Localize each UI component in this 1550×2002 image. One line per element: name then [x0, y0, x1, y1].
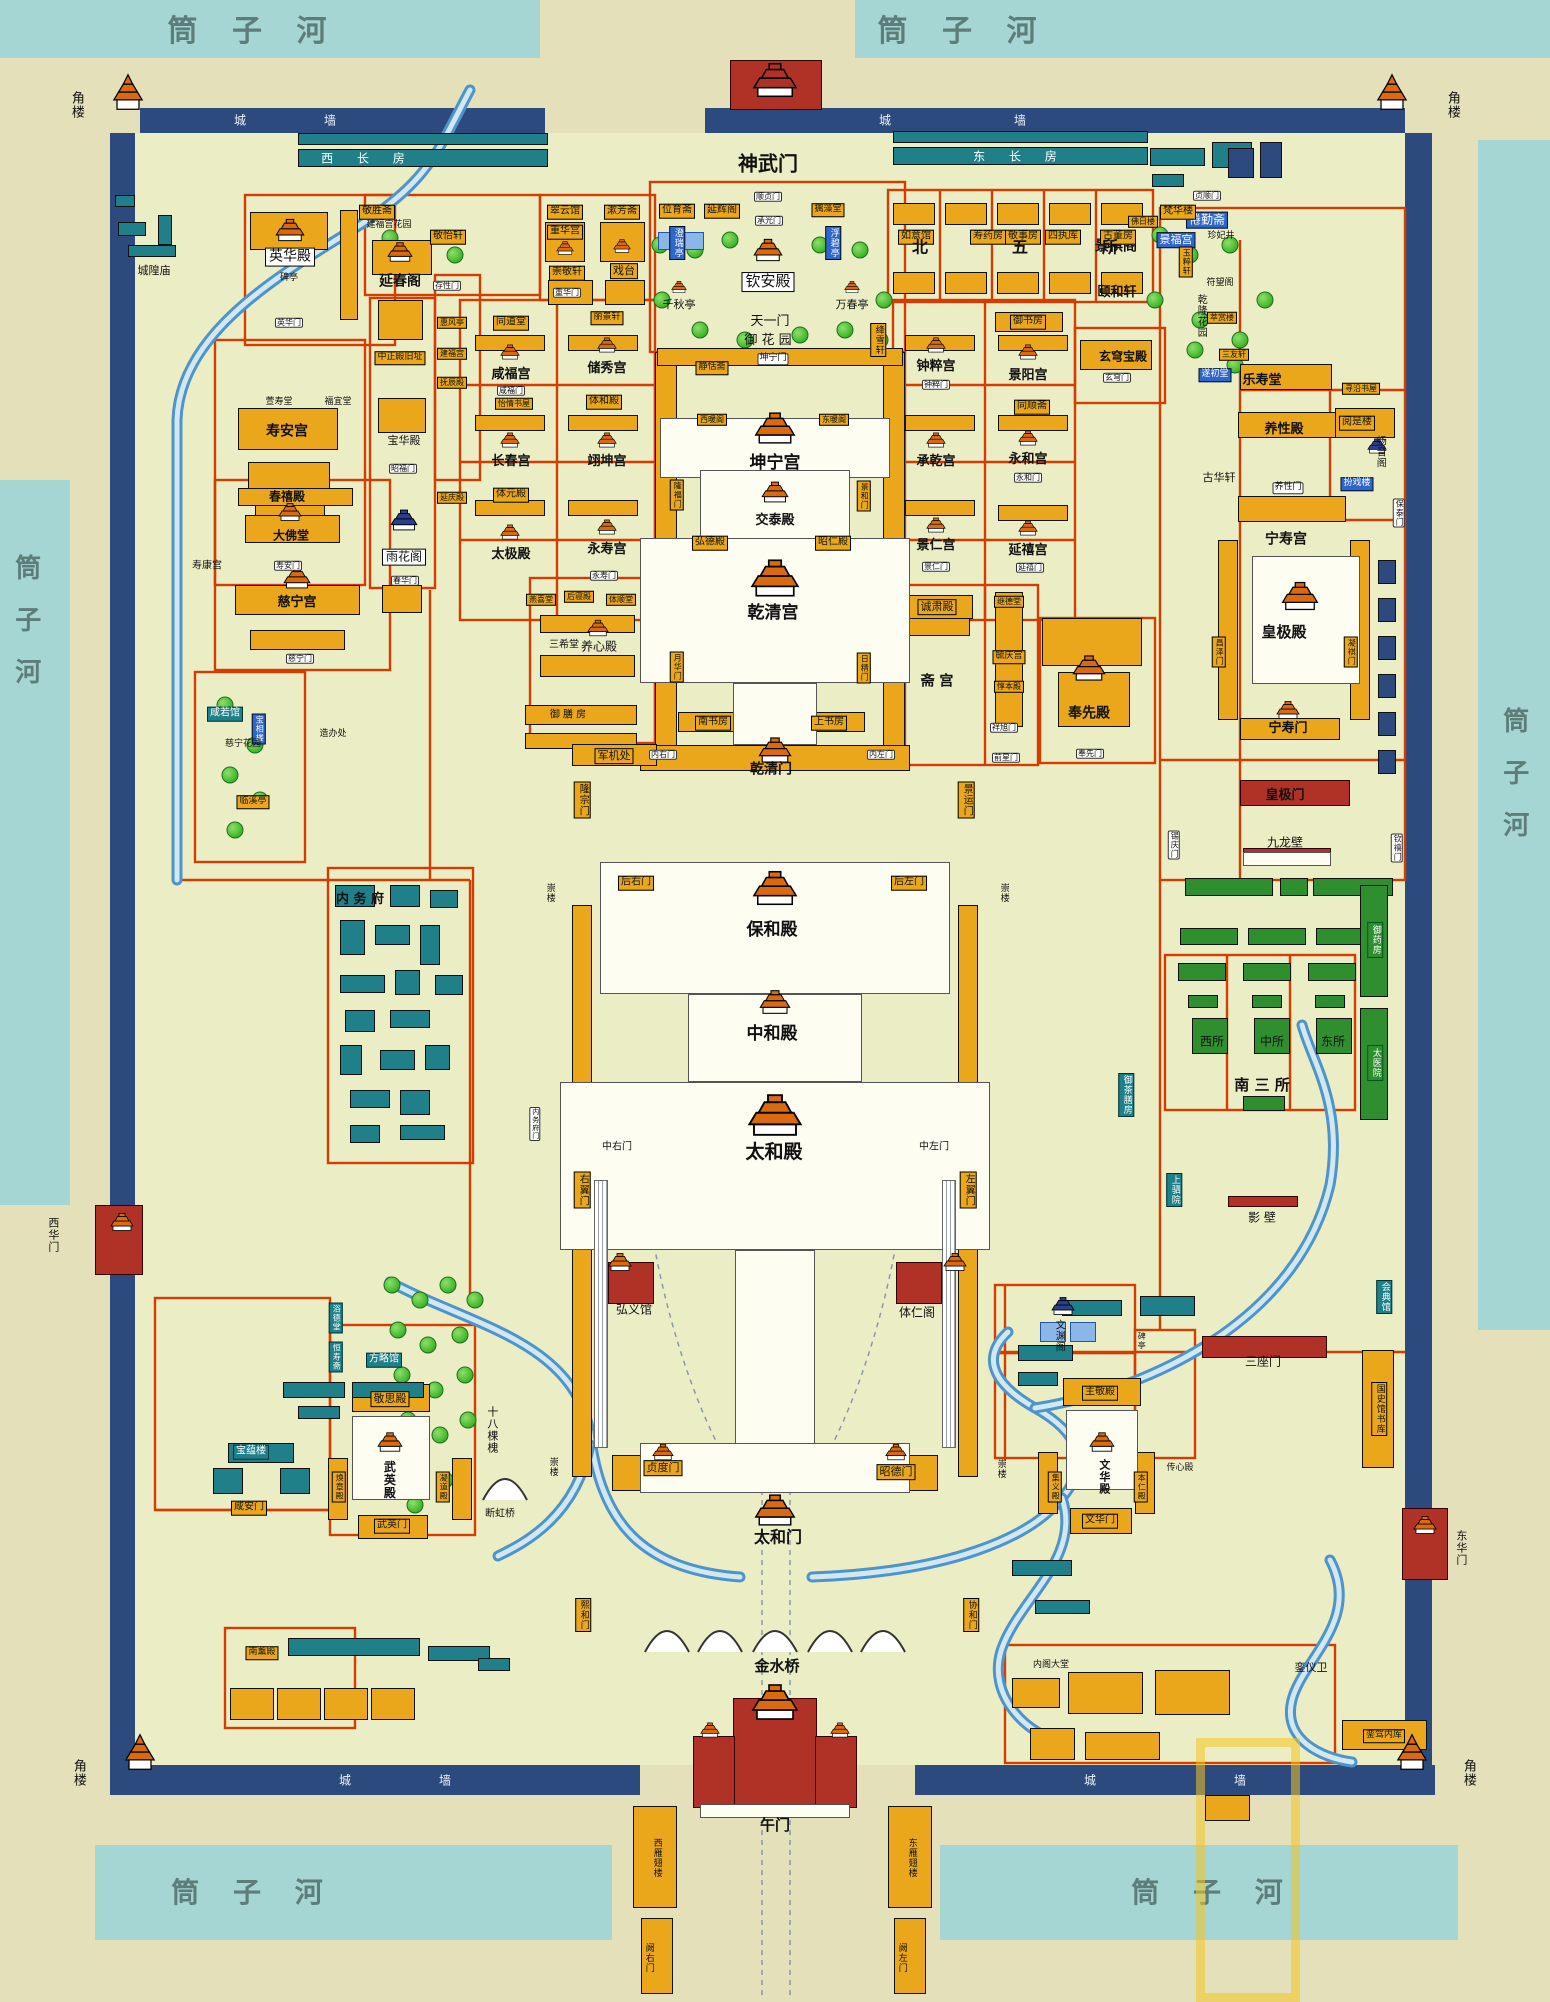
building-gold — [1085, 1732, 1160, 1760]
palace-hall-icon — [752, 868, 798, 907]
tree-icon — [692, 322, 709, 339]
map-label-銮驾内库: 銮驾内库 — [1363, 1729, 1405, 1743]
map-label-西华门: 西华门 — [47, 1217, 59, 1253]
map-label-寿安宫: 寿安宫 — [266, 425, 308, 440]
building-teal — [345, 1010, 375, 1032]
building-gold — [905, 415, 975, 431]
palace-hall-icon — [1281, 580, 1319, 612]
map-label-墙: 墙 — [439, 1775, 451, 1788]
building-navy — [1378, 750, 1396, 774]
building-teal — [395, 970, 420, 995]
palace-hall-icon — [747, 1091, 803, 1139]
map-label-九龙壁: 九龙壁 — [1267, 837, 1303, 850]
map-label-浴德堂: 浴德堂 — [329, 1303, 343, 1334]
map-label-乐寿堂: 乐寿堂 — [1242, 374, 1281, 388]
palace-hall-icon — [700, 1722, 720, 1739]
palace-hall-icon — [110, 1212, 134, 1232]
building-teal — [1035, 1600, 1090, 1614]
building-gold — [568, 500, 638, 516]
map-label-御 花 园: 御 花 园 — [744, 334, 791, 348]
map-label-景运门: 景运门 — [958, 782, 975, 819]
palace-hall-icon — [1072, 654, 1106, 683]
watermark-frame — [1196, 1738, 1300, 2002]
tree-icon — [467, 1292, 484, 1309]
palace-hall-icon — [500, 432, 520, 449]
map-label-万春亭: 万春亭 — [836, 299, 869, 311]
map-label-交泰殿: 交泰殿 — [755, 514, 794, 528]
building-teal — [1018, 1372, 1058, 1386]
map-label-静恬斋: 静恬斋 — [695, 361, 728, 375]
map-label-西 长 房: 西 长 房 — [321, 153, 415, 166]
map-label-崇楼: 崇楼 — [547, 1457, 557, 1477]
map-label-碑亭: 碑亭 — [280, 274, 298, 284]
tree-icon — [876, 292, 893, 309]
map-label-萱寿堂: 萱寿堂 — [265, 398, 292, 408]
map-label-建福宫: 建福宫 — [437, 348, 467, 360]
palace-hall-icon — [556, 240, 574, 255]
palace-hall-icon — [752, 60, 798, 99]
map-label-西暖阁: 西暖阁 — [697, 414, 727, 426]
map-label-佛日楼: 佛日楼 — [1128, 216, 1158, 228]
map-label-文华殿: 文华殿 — [1098, 1459, 1110, 1495]
map-label-宝蕴楼: 宝蕴楼 — [233, 1445, 269, 1460]
building-teal — [350, 1125, 380, 1143]
map-label-角楼: 角楼 — [1445, 91, 1459, 119]
map-label-景阳宫: 景阳宫 — [1008, 369, 1047, 383]
map-label-隆福门: 隆福门 — [670, 480, 684, 511]
map-label-怡情书屋: 怡情书屋 — [495, 398, 533, 410]
building-teal — [115, 195, 135, 207]
map-label-三希堂: 三希堂 — [549, 641, 579, 652]
map-label-景福宫: 景福宫 — [1157, 232, 1196, 248]
map-label-三座门: 三座门 — [1245, 1356, 1281, 1369]
map-label-内阁大堂: 内阁大堂 — [1033, 1661, 1069, 1671]
tree-icon — [452, 1327, 469, 1344]
map-label-古华轩: 古华轩 — [1203, 472, 1236, 484]
palace-hall-icon — [597, 519, 617, 536]
building-teal — [390, 1010, 430, 1028]
map-label-梵华楼: 梵华楼 — [1160, 205, 1196, 220]
building-teal — [1140, 1296, 1195, 1316]
building-gold — [893, 203, 935, 225]
map-label-銮仪卫: 銮仪卫 — [1295, 1662, 1328, 1674]
map-label-抚辰殿: 抚辰殿 — [437, 377, 467, 389]
building-navy — [1378, 598, 1396, 622]
map-label-敬怡轩: 敬怡轩 — [430, 230, 466, 245]
map-label-昌泽门: 昌泽门 — [1212, 637, 1226, 668]
map-label-临溪亭: 临溪亭 — [236, 795, 269, 809]
map-label-同顺斋: 同顺斋 — [1014, 400, 1050, 415]
palace-hall-icon — [751, 1682, 799, 1723]
map-label-永和宫: 永和宫 — [1008, 453, 1047, 467]
map-label-筒 子 河: 筒 子 河 — [878, 16, 1049, 48]
map-label-十八棵槐: 十八棵槐 — [486, 1406, 498, 1454]
palace-hall-icon — [926, 432, 946, 449]
map-label-贞度门: 贞度门 — [644, 1460, 683, 1476]
building-gold — [1049, 203, 1091, 225]
tree-icon — [384, 1277, 401, 1294]
palace-hall-icon — [597, 337, 617, 354]
map-label-筒 子 河: 筒 子 河 — [171, 1878, 335, 1908]
building-gold — [378, 300, 423, 340]
corner-tower-icon — [104, 72, 152, 113]
terrace-white — [1243, 852, 1331, 866]
map-label-太极殿: 太极殿 — [491, 548, 530, 562]
map-label-宝华殿: 宝华殿 — [388, 435, 421, 447]
map-label-咸福门: 咸福门 — [497, 386, 525, 396]
map-label-惠风亭: 惠风亭 — [437, 317, 467, 329]
map-label-斋 宫: 斋 宫 — [921, 675, 954, 690]
map-label-寿药房: 寿药房 — [970, 230, 1006, 245]
building-green — [1185, 878, 1273, 896]
map-label-钟粹宫: 钟粹宫 — [916, 360, 955, 374]
map-label-翊坤宫: 翊坤宫 — [587, 455, 626, 469]
map-label-皇极殿: 皇极殿 — [1261, 625, 1306, 641]
bridge-icon — [645, 1631, 689, 1652]
building-teal — [280, 1468, 310, 1494]
map-label-崇敬轩: 崇敬轩 — [549, 266, 585, 281]
map-label-乾清宫: 乾清宫 — [748, 604, 799, 622]
map-label-东雁翅楼: 东雁翅楼 — [906, 1838, 916, 1878]
building-green — [1180, 928, 1238, 945]
map-label-顺贞门: 顺贞门 — [754, 192, 782, 202]
map-label-大佛堂: 大佛堂 — [273, 530, 309, 543]
palace-hall-icon — [943, 1252, 967, 1272]
palace-hall-icon — [1413, 1515, 1437, 1535]
map-label-雨花阁: 雨花阁 — [382, 549, 426, 566]
map-label-春禧殿: 春禧殿 — [269, 491, 305, 504]
tree-icon — [412, 1292, 429, 1309]
map-label-同道堂: 同道堂 — [493, 316, 529, 331]
building-green — [1178, 963, 1226, 981]
map-label-所: 所 — [1102, 240, 1118, 257]
building-gold — [893, 272, 935, 294]
map-label-城: 城 — [339, 1775, 351, 1788]
map-label-继德堂: 继德堂 — [994, 596, 1024, 608]
map-label-敬胜斋: 敬胜斋 — [359, 205, 395, 220]
map-label-月华门: 月华门 — [670, 652, 684, 683]
map-label-浮碧亭: 浮碧亭 — [825, 226, 841, 260]
building-teal — [288, 1638, 420, 1656]
map-label-御药房: 御药房 — [1367, 922, 1383, 958]
map-label-弘义馆: 弘义馆 — [616, 1304, 652, 1317]
map-label-阙右门: 阙右门 — [643, 1943, 653, 1973]
map-label-储秀宫: 储秀宫 — [587, 362, 626, 376]
map-label-承乾宫: 承乾宫 — [916, 455, 955, 469]
map-label-武英殿: 武英殿 — [383, 1461, 396, 1500]
building-gold — [905, 500, 975, 516]
map-label-重华宫: 重华宫 — [547, 225, 583, 240]
corridor-hatched — [594, 1180, 608, 1448]
building-gold — [1012, 1678, 1060, 1708]
map-label-燕喜堂: 燕喜堂 — [526, 594, 556, 606]
map-label-钦禧门: 钦禧门 — [1391, 834, 1403, 863]
building-gold — [1238, 496, 1346, 522]
building-gold — [908, 618, 970, 636]
palace-hall-icon — [759, 988, 791, 1015]
map-label-体元殿: 体元殿 — [493, 488, 529, 503]
map-label-锡庆门: 锡庆门 — [1168, 831, 1180, 860]
map-label-养性殿: 养性殿 — [1264, 423, 1303, 437]
map-label-乾隆花园: 乾隆花园 — [1195, 294, 1206, 338]
palace-hall-icon — [1018, 430, 1038, 447]
bridge-icon — [861, 1631, 905, 1652]
map-label-玉粹轩: 玉粹轩 — [1179, 247, 1193, 278]
map-label-四执库: 四执库 — [1045, 230, 1081, 245]
tree-icon — [1187, 342, 1204, 359]
map-label-上书房: 上书房 — [811, 716, 847, 731]
building-navy — [1378, 560, 1396, 584]
building-teal — [158, 215, 172, 245]
bridge-icon — [483, 1479, 527, 1500]
map-label-养心殿: 养心殿 — [581, 641, 617, 654]
palace-hall-icon — [608, 1252, 632, 1272]
palace-hall-icon — [390, 508, 418, 532]
map-label-御 膳 房: 御 膳 房 — [550, 711, 586, 722]
map-label-崇楼: 崇楼 — [998, 883, 1008, 903]
map-label-承光门: 承光门 — [755, 216, 783, 226]
tree-icon — [1257, 292, 1274, 309]
courtyard-wall — [195, 672, 305, 862]
palace-hall-icon — [754, 1492, 796, 1528]
building-teal — [298, 133, 548, 145]
map-label-东 长 房: 东 长 房 — [973, 151, 1067, 164]
building-gold — [371, 1688, 415, 1720]
pond-water — [1070, 1322, 1096, 1342]
map-label-墙: 墙 — [1014, 115, 1026, 128]
building-teal — [430, 890, 458, 908]
palace-hall-icon — [1051, 1296, 1075, 1316]
palace-hall-icon — [1018, 344, 1038, 361]
map-label-前星门: 前星门 — [992, 753, 1020, 763]
map-label-筒子河: 筒子河 — [1499, 707, 1527, 863]
map-label-景仁宫: 景仁宫 — [916, 539, 955, 553]
tree-icon — [394, 1367, 411, 1384]
building-teal — [1152, 174, 1184, 187]
map-label-寻沿书屋: 寻沿书屋 — [1342, 383, 1380, 395]
map-label-中和殿: 中和殿 — [747, 1025, 798, 1043]
building-navy — [1378, 712, 1396, 736]
map-label-昭福门: 昭福门 — [389, 464, 417, 474]
palace-hall-icon — [587, 619, 609, 638]
map-label-阙左门: 阙左门 — [896, 1943, 906, 1973]
map-label-奉先门: 奉先门 — [1076, 749, 1104, 759]
building-teal — [1012, 1560, 1072, 1576]
palace-hall-icon — [885, 1443, 907, 1462]
building-teal — [213, 1468, 243, 1494]
map-label-惇本殿: 惇本殿 — [994, 681, 1024, 693]
palace-hall-icon — [1018, 520, 1038, 537]
map-label-左翼门: 左翼门 — [960, 1172, 977, 1209]
map-label-内务府门: 内务府门 — [529, 1107, 540, 1141]
building-teal — [118, 222, 146, 236]
map-label-咸福宫: 咸福宫 — [491, 368, 530, 382]
map-label-筒子河: 筒子河 — [11, 554, 39, 710]
palace-hall-icon — [652, 1443, 674, 1462]
map-label-遂初堂: 遂初堂 — [1198, 368, 1231, 382]
corner-tower-icon — [1368, 72, 1416, 113]
building-teal — [375, 925, 410, 945]
map-label-位育斋: 位育斋 — [659, 204, 695, 219]
map-label-角楼: 角楼 — [71, 1759, 85, 1787]
map-label-东所: 东所 — [1321, 1036, 1345, 1049]
tree-icon — [420, 1337, 437, 1354]
building-navy — [1378, 674, 1396, 698]
building-teal — [340, 975, 385, 993]
tree-icon — [460, 1412, 477, 1429]
building-gold — [475, 415, 545, 431]
map-label-建福宫花园: 建福宫花园 — [366, 221, 411, 231]
building-gold — [1218, 540, 1238, 720]
building-green — [1280, 878, 1308, 896]
map-label-永寿门: 永寿门 — [590, 571, 618, 581]
map-label-诚肃殿: 诚肃殿 — [918, 599, 957, 615]
map-label-敬思殿: 敬思殿 — [371, 1391, 410, 1407]
map-label-南 三 所: 南 三 所 — [1234, 1078, 1289, 1094]
map-label-影 壁: 影 壁 — [1248, 1212, 1276, 1225]
building-navy — [1378, 636, 1396, 660]
building-crimson — [693, 1736, 735, 1808]
map-label-澄瑞亭: 澄瑞亭 — [669, 226, 685, 260]
map-label-永和门: 永和门 — [1014, 473, 1042, 483]
building-gold — [277, 1688, 321, 1720]
map-label-玄穹宝殿: 玄穹宝殿 — [1099, 351, 1147, 364]
map-label-文华门: 文华门 — [1082, 1514, 1118, 1529]
map-label-阅是楼: 阅是楼 — [1339, 416, 1375, 431]
building-gold — [475, 500, 545, 516]
corridor-hatched — [942, 1180, 956, 1448]
map-label-中右门: 中右门 — [602, 1143, 632, 1154]
map-label-本仁殿: 本仁殿 — [1134, 1472, 1148, 1503]
building-teal — [128, 245, 176, 257]
tree-icon — [722, 232, 739, 249]
building-gold — [324, 1688, 368, 1720]
map-label-慈宁宫: 慈宁宫 — [277, 596, 316, 610]
map-label-主敬殿: 主敬殿 — [1082, 1386, 1118, 1401]
map-label-三友轩: 三友轩 — [1219, 349, 1249, 361]
palace-hall-icon — [377, 1431, 403, 1453]
map-label-会典馆: 会典馆 — [1376, 1280, 1392, 1314]
map-label-中正殿旧址: 中正殿旧址 — [374, 351, 425, 365]
map-label-金水桥: 金水桥 — [754, 1659, 799, 1675]
map-label-萃赏楼: 萃赏楼 — [1207, 312, 1237, 324]
palace-hall-icon — [753, 237, 783, 263]
tree-icon — [440, 1277, 457, 1294]
tree-icon — [447, 247, 464, 264]
map-label-贞顺门: 贞顺门 — [1193, 191, 1221, 201]
map-label-体顺堂: 体顺堂 — [606, 594, 636, 606]
map-label-延禧宫: 延禧宫 — [1008, 544, 1047, 558]
map-label-慈宁花园: 慈宁花园 — [225, 740, 261, 750]
building-gold — [1155, 1670, 1230, 1715]
tree-icon — [457, 1367, 474, 1384]
map-label-景和门: 景和门 — [857, 481, 871, 512]
map-label-崇楼: 崇楼 — [544, 883, 554, 903]
map-label-体仁阁: 体仁阁 — [899, 1307, 935, 1320]
map-label-东华门: 东华门 — [1455, 1530, 1467, 1566]
map-label-后左门: 后左门 — [891, 876, 927, 891]
building-gold — [605, 280, 645, 305]
map-label-千秋亭: 千秋亭 — [663, 299, 696, 311]
building-gold — [945, 203, 987, 225]
map-label-恒寿斋: 恒寿斋 — [329, 1342, 343, 1373]
map-label-城: 城 — [234, 115, 246, 128]
building-teal — [1150, 148, 1205, 166]
map-label-碑亭: 碑亭 — [1137, 1332, 1145, 1350]
map-label-祥旭门: 祥旭门 — [990, 723, 1018, 733]
map-label-崇楼: 崇楼 — [995, 1459, 1005, 1479]
map-label-后右门: 后右门 — [618, 876, 654, 891]
palace-hall-icon — [387, 241, 413, 263]
building-gold — [1049, 272, 1091, 294]
map-label-协和门: 协和门 — [963, 1598, 979, 1632]
map-label-内左门: 内左门 — [867, 750, 895, 760]
corner-tower-icon — [116, 1732, 164, 1773]
map-label-城隍庙: 城隍庙 — [138, 265, 171, 277]
map-label-延辉阁: 延辉阁 — [704, 204, 740, 219]
map-label-昭仁殿: 昭仁殿 — [815, 536, 851, 551]
building-teal — [400, 1090, 430, 1115]
map-label-符望阁: 符望阁 — [1206, 279, 1233, 289]
map-label-文渊阁: 文渊阁 — [1053, 1320, 1064, 1353]
forbidden-city-map: 筒 子 河筒 子 河筒子河筒子河筒 子 河筒 子 河角楼角楼角楼角楼城墙城墙城墙… — [0, 0, 1550, 2000]
map-label-翠云馆: 翠云馆 — [547, 205, 583, 220]
map-label-扮戏楼: 扮戏楼 — [1340, 477, 1373, 491]
building-green — [1248, 928, 1306, 945]
building-teal — [400, 1125, 445, 1140]
map-label-焕章殿: 焕章殿 — [332, 1472, 346, 1503]
map-label-造办处: 造办处 — [319, 730, 346, 740]
map-label-咸若馆: 咸若馆 — [207, 707, 243, 722]
map-label-奉先殿: 奉先殿 — [1068, 707, 1110, 722]
building-gold — [1030, 1728, 1075, 1760]
building-gold — [382, 585, 422, 613]
tree-icon — [227, 822, 244, 839]
building-navy — [1260, 142, 1282, 178]
map-label-慈宁门: 慈宁门 — [286, 654, 314, 664]
map-label-西所: 西所 — [1200, 1036, 1224, 1049]
building-crimson — [1228, 1196, 1298, 1207]
building-teal — [435, 975, 463, 995]
map-label-珍妃井: 珍妃井 — [1207, 232, 1234, 242]
tree-icon — [390, 1322, 407, 1339]
palace-hall-icon — [278, 502, 302, 522]
map-label-断虹桥: 断虹桥 — [485, 1510, 515, 1521]
palace-hall-icon — [1089, 1431, 1115, 1453]
palace-hall-icon — [830, 1722, 850, 1739]
map-label-御茶膳房: 御茶膳房 — [1118, 1073, 1134, 1117]
map-label-天一门: 天一门 — [750, 315, 789, 329]
map-label-寿安门: 寿安门 — [274, 561, 302, 571]
map-label-武英门: 武英门 — [374, 1519, 410, 1534]
building-teal — [1018, 1345, 1073, 1361]
map-label-毓庆宫: 毓庆宫 — [992, 650, 1025, 664]
palace-hall-icon — [750, 557, 800, 600]
building-gold — [1068, 1672, 1143, 1714]
tree-icon — [852, 242, 869, 259]
map-label-内 务 府: 内 务 府 — [336, 893, 384, 907]
palace-hall-icon — [926, 517, 946, 534]
palace-hall-icon — [275, 217, 305, 243]
map-label-右翼门: 右翼门 — [574, 1172, 591, 1209]
map-label-乾清门: 乾清门 — [750, 763, 792, 778]
building-teal — [390, 885, 420, 907]
bridge-icon — [808, 1631, 852, 1652]
map-label-后寝殿: 后寝殿 — [564, 591, 594, 603]
map-label-英华殿: 英华殿 — [265, 248, 315, 267]
map-label-永寿宫: 永寿宫 — [587, 543, 626, 557]
map-label-延禧门: 延禧门 — [1016, 563, 1044, 573]
